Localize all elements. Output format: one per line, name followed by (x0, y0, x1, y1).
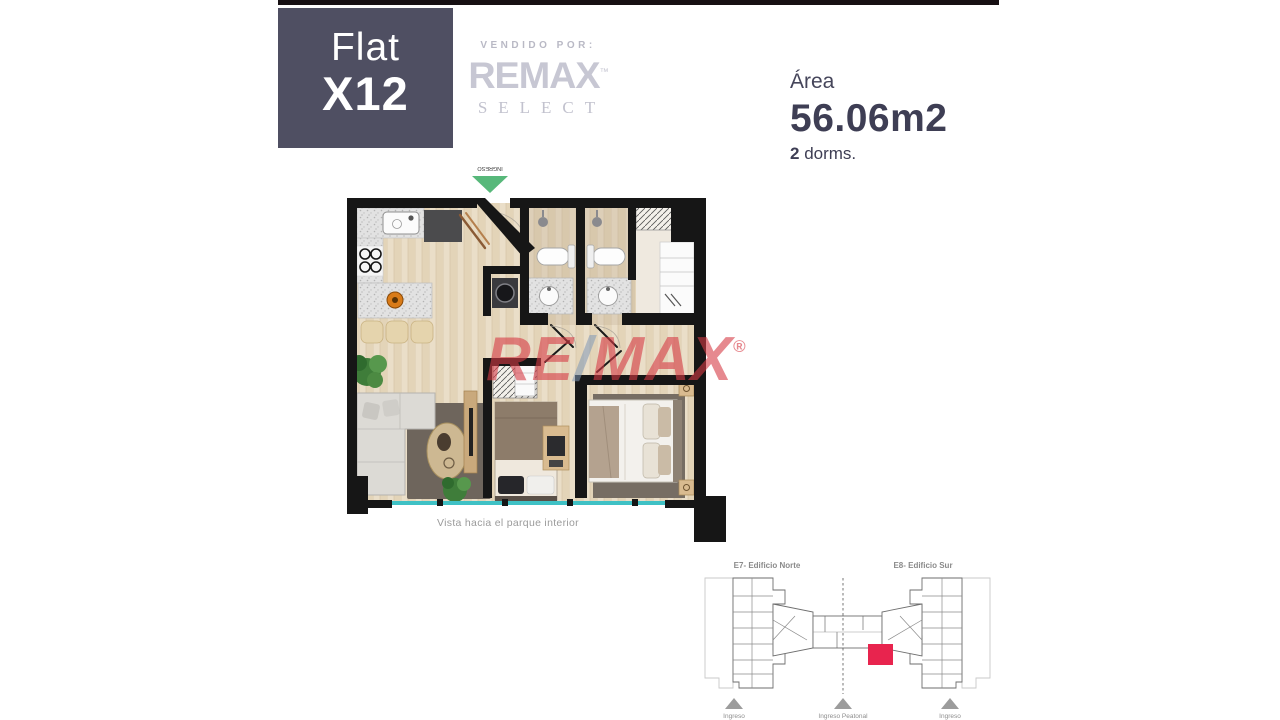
plan-caption: Vista hacia el parque interior (393, 517, 623, 529)
building-south-label: E8- Edificio Sur (893, 561, 952, 570)
tv (469, 408, 473, 456)
top-black-bar (278, 0, 999, 5)
entry-arrow: INGRESO (472, 165, 508, 193)
entrance-center-label: Ingreso Peatonal (818, 713, 868, 720)
toilet (593, 248, 625, 265)
highlighted-unit (868, 644, 893, 665)
site-key-plan: E7- Edificio Norte E8- Edificio Sur Ingr… (695, 552, 1000, 720)
shower-head (538, 217, 548, 227)
entrance-left-label: Ingreso (723, 713, 745, 720)
desk-printer (547, 436, 565, 456)
shower-head (592, 217, 602, 227)
exterior-column (694, 496, 726, 542)
brand-wordmark: REMAX™ (456, 55, 619, 97)
entry-label: INGRESO (477, 165, 503, 171)
coffee-table (427, 423, 467, 479)
master-bedroom (589, 381, 694, 498)
pillow (498, 476, 524, 494)
unit-title-line2: X12 (278, 69, 453, 118)
entrance-arrows (725, 698, 959, 709)
toilet (537, 248, 569, 265)
sofa-pillow (382, 399, 400, 417)
entrance-right-label: Ingreso (939, 713, 961, 720)
area-value: 56.06m2 (790, 97, 947, 141)
master-headboard (673, 400, 682, 482)
unit-title-line1: Flat (278, 28, 453, 69)
dorms-line: 2 dorms. (790, 144, 947, 164)
pillow (658, 407, 671, 437)
area-info: Área 56.06m2 2 dorms. (790, 70, 947, 164)
laundry (492, 278, 518, 308)
pillow (643, 443, 660, 478)
area-label: Área (790, 70, 947, 94)
building-north (733, 578, 813, 688)
unit-title-box: Flat X12 (278, 8, 453, 148)
entrance-arrow-icon (834, 698, 852, 709)
building-south (882, 578, 962, 688)
entrance-arrow-icon (725, 698, 743, 709)
watermark-registered: ® (733, 337, 747, 356)
dorms-label: dorms. (799, 144, 856, 163)
wardrobe (660, 242, 694, 324)
floorplan-drawing: INGRESO (345, 160, 730, 545)
pillow (643, 404, 660, 439)
central-corridor (813, 616, 882, 648)
kitchen-fridge (424, 210, 462, 242)
building-north-label: E7- Edificio Norte (734, 561, 801, 570)
entry-arrow-icon (472, 176, 508, 193)
remax-select-logo: VENDIDO POR: REMAX™ SELECT (458, 40, 618, 118)
kitchen-stools (361, 321, 433, 343)
brand-division: SELECT (458, 98, 618, 118)
pillow (527, 476, 554, 494)
nightstand (679, 480, 694, 495)
entrance-arrow-icon (941, 698, 959, 709)
brand-name: REMAX (468, 55, 599, 96)
sofa-pillow (362, 402, 381, 421)
brand-tm: ™ (600, 67, 608, 77)
pillow (658, 445, 671, 475)
sold-by-label: VENDIDO POR: (458, 40, 618, 51)
